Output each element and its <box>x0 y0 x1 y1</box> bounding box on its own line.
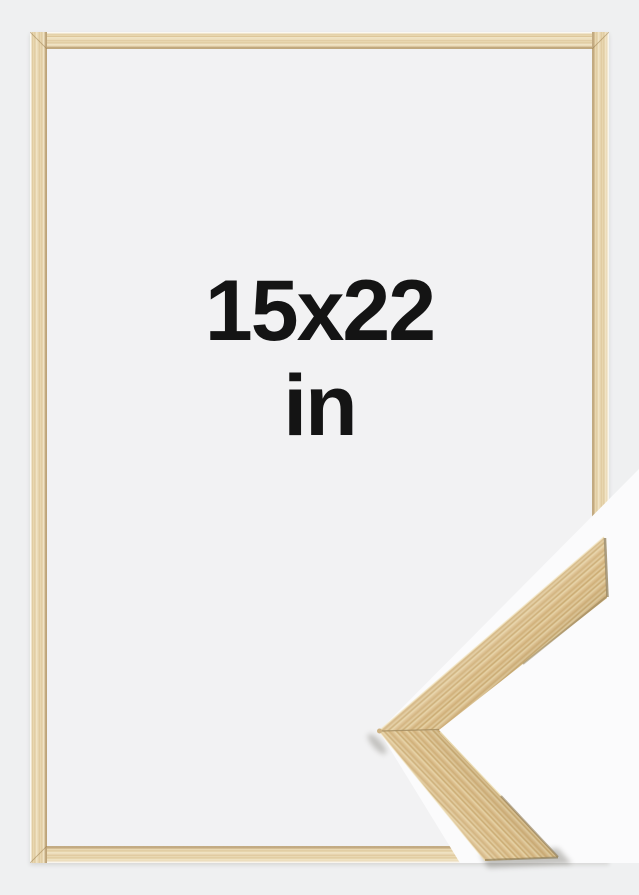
frame-miter-top-left <box>30 32 47 49</box>
size-label-dimensions: 15x22 <box>47 264 592 359</box>
frame-border-bottom <box>30 846 609 863</box>
frame-miter-top-right <box>592 32 609 49</box>
product-image: { "size_label": { "line1": "15x22", "lin… <box>0 0 639 895</box>
frame-border-top <box>30 32 609 49</box>
frame-border-right <box>592 32 609 863</box>
size-label: 15x22 in <box>47 264 592 453</box>
frame-miter-bottom-right <box>592 846 609 863</box>
frame-border-left <box>30 32 47 863</box>
frame-miter-bottom-left <box>30 846 47 863</box>
size-label-unit: in <box>47 359 592 454</box>
